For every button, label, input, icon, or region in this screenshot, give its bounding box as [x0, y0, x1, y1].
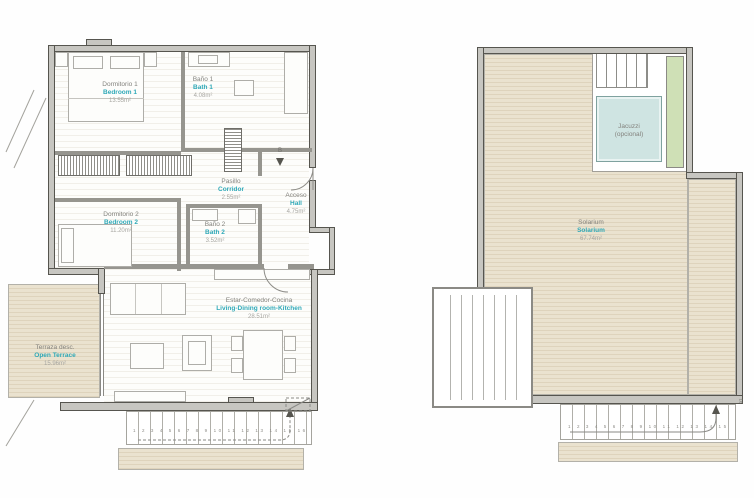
room-label-bath2: Baño 2 Bath 2 3.52m²: [205, 221, 226, 245]
kitchen-counter: [214, 269, 310, 280]
tv-bench: [114, 391, 186, 402]
pillow: [110, 56, 140, 69]
wall: [60, 402, 318, 411]
room-area: 67.74m²: [577, 235, 605, 243]
bathtub: [284, 52, 308, 114]
stair-arrival-treads: [596, 54, 648, 88]
room-name-en: Corridor: [218, 186, 244, 194]
room-name-en: Bath 1: [193, 84, 214, 92]
room-name-en: Bedroom 2: [103, 219, 138, 227]
room-label-bedroom2: Dormitorio 2 Bedroom 2 11.20m²: [103, 211, 138, 235]
partition-wall: [258, 148, 262, 176]
sink: [192, 209, 218, 221]
sink: [198, 55, 218, 64]
armchair-cushion: [188, 341, 206, 365]
nightstand: [55, 52, 68, 67]
jacuzzi-label-line2: (opcional): [615, 131, 644, 139]
room-name-en: Open Terrace: [34, 352, 75, 360]
room-name-en: Solarium: [577, 227, 605, 235]
terrace-window: [100, 292, 104, 396]
room-name-en: Bedroom 1: [102, 89, 137, 97]
chair: [284, 336, 296, 351]
wall: [98, 268, 105, 294]
room-name-es: Acceso: [285, 192, 306, 200]
wardrobe: [224, 128, 242, 172]
wall: [228, 397, 254, 403]
room-label-corridor: Pasillo Corridor 2.55m²: [218, 178, 244, 202]
annex-stripes: [440, 295, 525, 400]
room-area: 4.08m²: [193, 92, 214, 100]
room-name-en: Living-Dining room-Kitchen: [216, 305, 302, 313]
partition-wall: [258, 204, 262, 268]
stair-step-numbers: 1 2 3 4 5 6 7 8 9 10 11 12 13 14 15: [568, 424, 729, 429]
pillow: [61, 228, 74, 263]
wall: [477, 47, 484, 293]
chair: [231, 358, 243, 373]
room-name-en: Hall: [285, 200, 306, 208]
wall: [477, 47, 693, 54]
room-area: 11.20m²: [103, 227, 138, 235]
dining-table: [243, 330, 283, 380]
wardrobe: [126, 155, 192, 176]
room-area: 15.96m²: [34, 360, 75, 368]
sofa: [110, 283, 186, 315]
top-step-label: 16: [739, 398, 744, 403]
room-name-es: Estar-Comedor-Cocina: [216, 297, 302, 305]
wall: [309, 180, 316, 233]
room-area: 13.55m²: [102, 97, 137, 105]
floorplan-canvas: 1 2 3 4 5 6 7 8 9 10 11 12 13 14 15 16 D…: [0, 0, 754, 498]
room-label-living: Estar-Comedor-Cocina Living-Dining room-…: [216, 297, 302, 321]
room-name-es: Pasillo: [218, 178, 244, 186]
chair: [231, 336, 243, 351]
jacuzzi-label-line1: Jacuzzi: [615, 123, 644, 131]
lower-roof-annex: [432, 287, 533, 408]
room-area: 2.55m²: [218, 194, 244, 202]
wardrobe: [58, 155, 120, 176]
room-name-en: Bath 2: [205, 229, 226, 237]
toilet: [234, 80, 254, 96]
wall: [530, 395, 743, 404]
staircase: [560, 404, 736, 440]
side-table: [130, 343, 164, 369]
stair-step-numbers: 1 2 3 4 5 6 7 8 9 10 11 12 13 14 15 16: [133, 428, 308, 433]
partition-wall: [186, 204, 190, 268]
wall: [686, 172, 743, 179]
wall: [48, 268, 105, 275]
lower-planter-strip: [558, 442, 738, 462]
nightstand: [144, 52, 157, 67]
room-label-solarium: Solarium Solarium 67.74m²: [577, 219, 605, 243]
room-label-terrace: Terraza desc. Open Terrace 15.96m²: [34, 344, 75, 368]
partition-wall: [181, 148, 224, 152]
room-name-es: Baño 2: [205, 221, 226, 229]
wall: [86, 39, 112, 46]
room-name-es: Dormitorio 1: [102, 81, 137, 89]
room-label-bath1: Baño 1 Bath 1 4.08m²: [193, 76, 214, 100]
solarium-deck: [688, 179, 736, 395]
room-area: 28.51m²: [216, 313, 302, 321]
pillow: [73, 56, 103, 69]
room-area: 3.52m²: [205, 237, 226, 245]
wall: [736, 172, 743, 404]
terrace-deck: [8, 284, 100, 398]
room-name-es: Baño 1: [193, 76, 214, 84]
partition-wall: [55, 198, 181, 202]
room-label-bedroom1: Dormitorio 1 Bedroom 1 13.55m²: [102, 81, 137, 105]
wall: [329, 227, 335, 275]
wall: [48, 45, 55, 275]
break-line: [6, 90, 34, 152]
wall: [686, 47, 693, 179]
chair: [284, 358, 296, 373]
partition-wall: [181, 52, 185, 150]
break-line: [14, 98, 46, 168]
toilet: [238, 209, 256, 224]
room-label-hall: Acceso Hall 4.75m²: [285, 192, 306, 216]
partition-wall: [177, 198, 181, 271]
lower-planter-strip: [118, 448, 304, 470]
planter-strip: [666, 56, 684, 168]
wall: [311, 269, 318, 409]
break-line: [6, 400, 34, 446]
room-name-es: Dormitorio 2: [103, 211, 138, 219]
room-name-es: Terraza desc.: [34, 344, 75, 352]
jacuzzi-label: Jacuzzi (opcional): [615, 123, 644, 139]
room-name-es: Solarium: [577, 219, 605, 227]
room-area: 4.75m²: [285, 208, 306, 216]
wall: [48, 45, 316, 52]
entry-marker-label: B: [278, 148, 282, 154]
partition-wall: [186, 204, 262, 208]
